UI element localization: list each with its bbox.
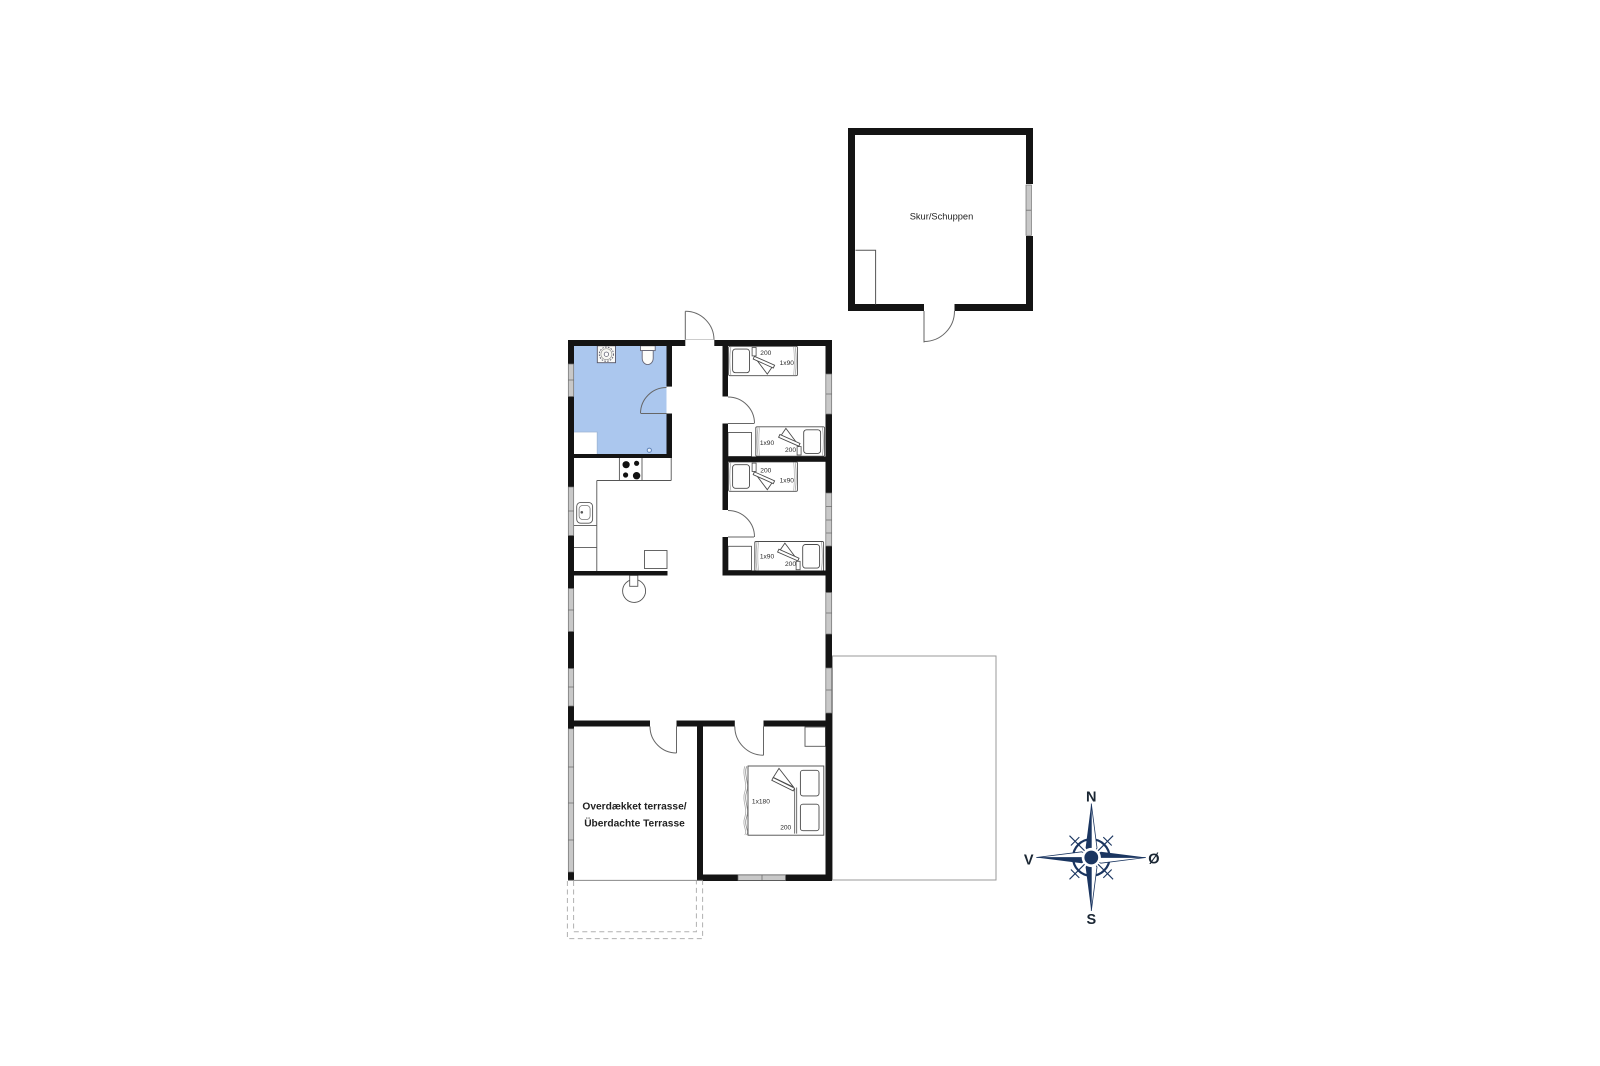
svg-text:Overdækket terrasse/: Overdækket terrasse/: [582, 802, 686, 813]
svg-text:N: N: [1086, 789, 1096, 805]
svg-text:200: 200: [785, 561, 796, 568]
svg-text:S: S: [1086, 912, 1096, 928]
svg-text:V: V: [1024, 852, 1034, 868]
svg-text:200: 200: [760, 350, 771, 357]
svg-text:200: 200: [785, 447, 796, 454]
svg-text:200: 200: [780, 825, 791, 832]
svg-text:Ø: Ø: [1148, 851, 1159, 867]
svg-text:Überdachte Terrasse: Überdachte Terrasse: [584, 817, 685, 830]
svg-text:1x180: 1x180: [752, 799, 770, 806]
svg-text:1x90: 1x90: [760, 554, 775, 561]
svg-text:1x90: 1x90: [760, 440, 775, 447]
svg-text:1x90: 1x90: [780, 360, 795, 367]
svg-text:200: 200: [760, 467, 771, 474]
svg-text:Skur/Schuppen: Skur/Schuppen: [910, 212, 974, 222]
svg-text:1x90: 1x90: [780, 477, 795, 484]
